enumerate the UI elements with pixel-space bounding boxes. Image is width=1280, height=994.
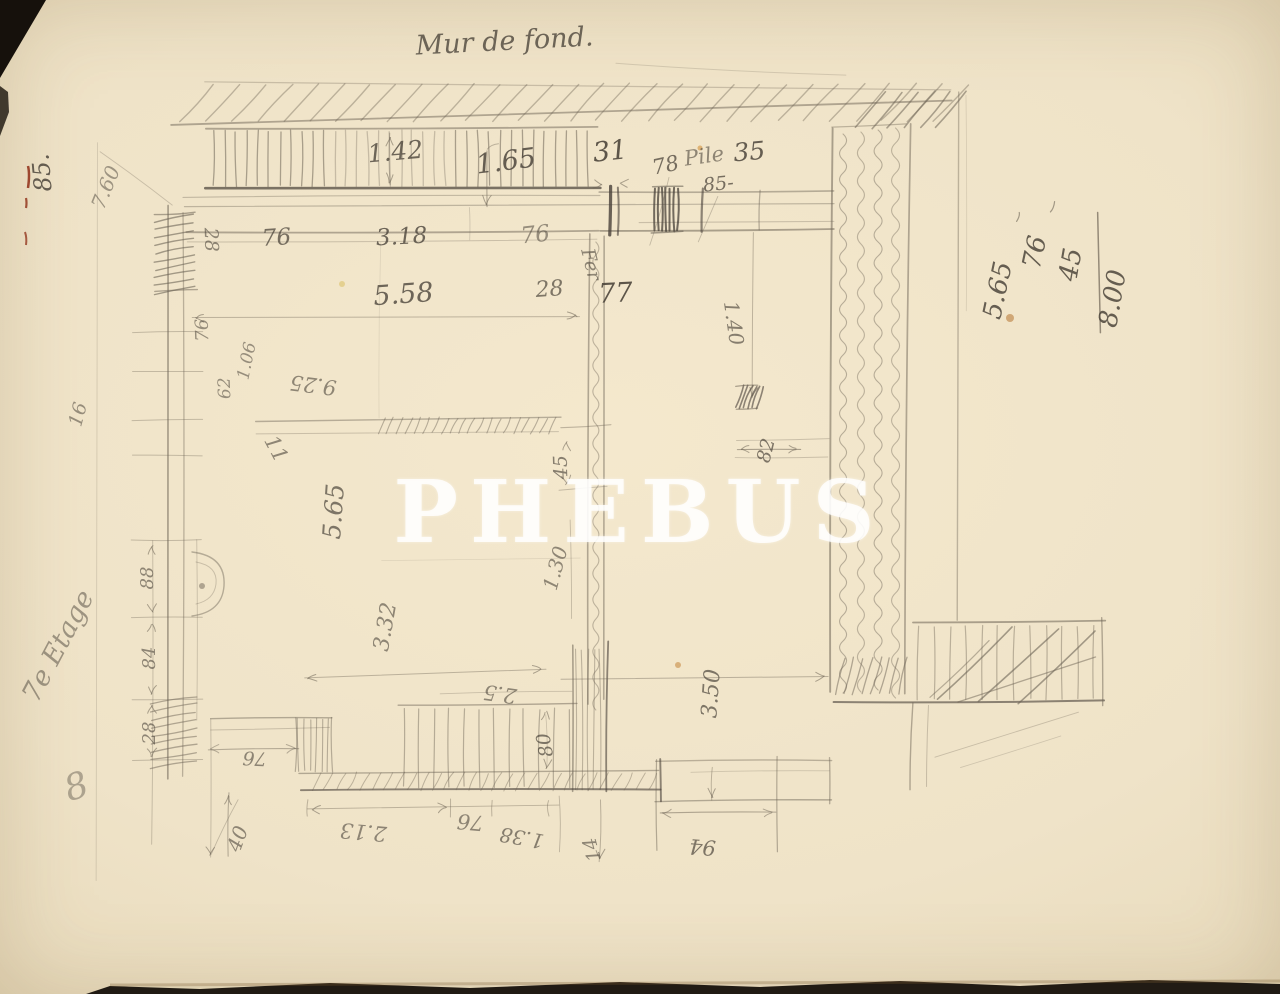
dimension-label: 94 bbox=[688, 834, 716, 860]
dimension-label: 5.58 bbox=[372, 277, 434, 312]
sketch-title: Mur de fond. bbox=[414, 21, 594, 61]
dimension-label: 82 bbox=[753, 436, 780, 465]
dimension-label: 11 bbox=[259, 431, 293, 466]
dimension-label: 88 bbox=[137, 567, 158, 590]
pile-note: Pile bbox=[682, 141, 726, 170]
dimension-label: 1.42 bbox=[366, 135, 424, 169]
dimension-label: 28 bbox=[200, 226, 223, 252]
dimension-label: 76 bbox=[261, 224, 292, 252]
dimension-label: 2.5 bbox=[482, 680, 519, 709]
dimension-label: 78 bbox=[650, 151, 681, 180]
dimension-label: 7.60 bbox=[86, 162, 125, 213]
dimension-label: 76 bbox=[192, 318, 214, 342]
dimension-label: 14 bbox=[578, 835, 606, 864]
photo-edges bbox=[0, 0, 1280, 994]
dimension-label: 85- bbox=[702, 171, 735, 196]
dimension-label: 5.65 bbox=[317, 483, 350, 541]
dimension-label: 76 bbox=[519, 221, 551, 250]
dimension-label: 16 bbox=[64, 400, 92, 429]
scanned-sketch-page: Mur de fond.85.7.601.421.653178Pile85-35… bbox=[0, 0, 1280, 994]
dimension-label: 3.50 bbox=[697, 668, 725, 719]
dimension-label: 28 bbox=[139, 722, 160, 746]
calc-value-1: 5.65 bbox=[977, 259, 1018, 322]
dimension-label: 9.25 bbox=[288, 370, 337, 400]
corner-number: 85. bbox=[26, 152, 57, 192]
dimension-label: 2.13 bbox=[339, 818, 389, 846]
dimension-label: 80 bbox=[532, 731, 558, 759]
dimension-label: 76 bbox=[456, 809, 485, 835]
dimension-label: 3.18 bbox=[375, 223, 428, 252]
margin-mark: 8 bbox=[59, 764, 93, 810]
dimension-label: 1.30 bbox=[538, 543, 573, 592]
dimension-label: 77 bbox=[598, 277, 635, 310]
dimension-label: 45 bbox=[550, 455, 573, 481]
dimension-label: 28 bbox=[534, 276, 565, 303]
floor-plan-sketch: Mur de fond.85.7.601.421.653178Pile85-35… bbox=[0, 0, 1280, 994]
dimension-label: 40 bbox=[221, 822, 253, 855]
dimension-label: 31 bbox=[591, 134, 628, 168]
floor-label: 7e Etage bbox=[16, 585, 100, 707]
dimension-label: 76 bbox=[242, 746, 267, 769]
calc-value-3: 45 bbox=[1053, 246, 1088, 285]
dimension-label: 1.65 bbox=[474, 143, 537, 181]
paper-stains bbox=[199, 146, 1014, 669]
dimension-label: 1.06 bbox=[233, 340, 260, 381]
dimension-label: 3.32 bbox=[369, 601, 402, 654]
dimension-label: 62 bbox=[215, 377, 236, 399]
calc-value-2: 76 bbox=[1017, 233, 1053, 272]
dimension-label: 1.40 bbox=[719, 299, 749, 347]
dimension-label: 84 bbox=[139, 647, 160, 670]
dimension-label: 35 bbox=[732, 136, 766, 168]
dimension-label: 1.38 bbox=[498, 822, 546, 853]
